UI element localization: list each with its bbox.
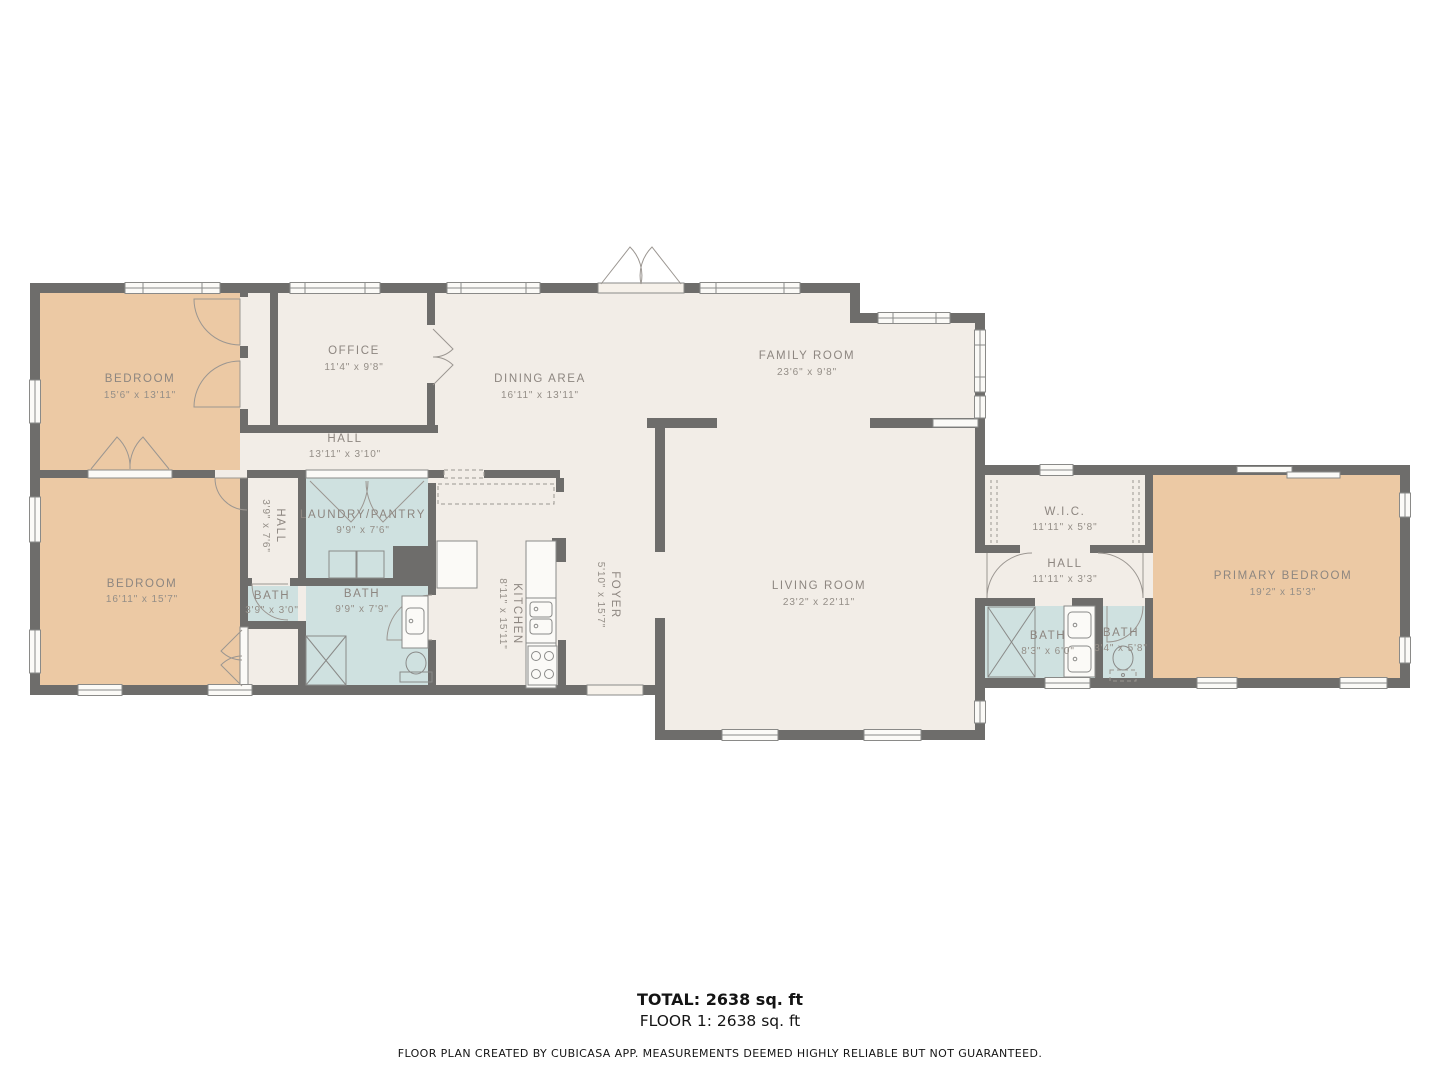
svg-text:23'2" x 22'11": 23'2" x 22'11" <box>783 597 855 608</box>
entry-door-leaf <box>640 247 681 284</box>
window <box>447 283 540 294</box>
svg-text:11'11" x 5'8": 11'11" x 5'8" <box>1032 522 1097 533</box>
laundry-door-sill <box>306 470 428 478</box>
window <box>1400 637 1411 663</box>
svg-text:BEDROOM: BEDROOM <box>105 373 176 385</box>
disclaimer-text: FLOOR PLAN CREATED BY CUBICASA APP. MEAS… <box>0 1047 1440 1060</box>
window <box>722 730 778 741</box>
window <box>1040 465 1073 476</box>
window <box>975 330 986 392</box>
window <box>1400 493 1411 517</box>
footer: TOTAL: 2638 sq. ft FLOOR 1: 2638 sq. ft … <box>0 990 1440 1060</box>
svg-text:23'6" x 9'8": 23'6" x 9'8" <box>777 367 837 378</box>
window <box>30 497 41 542</box>
front-entry-sill <box>587 685 643 695</box>
svg-text:DINING AREA: DINING AREA <box>494 373 586 385</box>
svg-text:3'9" x 3'0": 3'9" x 3'0" <box>245 605 299 616</box>
svg-text:13'11" x 3'10": 13'11" x 3'10" <box>309 449 381 460</box>
window <box>1197 678 1237 689</box>
svg-text:3'9" x 7'6": 3'9" x 7'6" <box>260 499 271 553</box>
svg-text:BEDROOM: BEDROOM <box>107 578 178 590</box>
window <box>208 685 252 696</box>
svg-text:16'11" x 13'11": 16'11" x 13'11" <box>501 390 579 401</box>
window <box>290 283 380 294</box>
window <box>125 283 220 294</box>
svg-text:HALL: HALL <box>1047 558 1082 570</box>
window <box>1340 678 1387 689</box>
floor-area-text: FLOOR 1: 2638 sq. ft <box>0 1012 1440 1030</box>
passthrough-sill <box>933 419 978 427</box>
svg-text:OFFICE: OFFICE <box>328 345 380 357</box>
svg-text:3'4" x 5'8": 3'4" x 5'8" <box>1094 643 1148 654</box>
stove <box>528 646 557 685</box>
window <box>30 380 41 423</box>
svg-text:8'3" x 6'0": 8'3" x 6'0" <box>1021 646 1075 657</box>
svg-text:9'9" x 7'9": 9'9" x 7'9" <box>335 604 389 615</box>
window <box>975 396 986 418</box>
svg-text:HALL: HALL <box>274 508 286 543</box>
svg-text:11'4" x 9'8": 11'4" x 9'8" <box>324 362 383 373</box>
svg-text:BATH: BATH <box>254 590 290 602</box>
closet-sill-bedroom2 <box>240 627 248 687</box>
svg-text:15'6" x 13'11": 15'6" x 13'11" <box>104 390 176 401</box>
svg-text:BATH: BATH <box>344 588 380 600</box>
window <box>700 283 800 294</box>
window <box>864 730 921 741</box>
window <box>78 685 122 696</box>
svg-text:5'10" x 15'7": 5'10" x 15'7" <box>595 562 606 629</box>
window <box>1045 678 1090 689</box>
window <box>30 630 41 673</box>
svg-text:LAUNDRY/PANTRY: LAUNDRY/PANTRY <box>300 509 426 521</box>
hall-right-opening <box>973 553 987 598</box>
kitchen-island <box>437 541 477 588</box>
svg-text:W.I.C.: W.I.C. <box>1045 506 1086 518</box>
svg-text:HALL: HALL <box>327 433 362 445</box>
laundry-cabinet <box>393 546 428 578</box>
vanity <box>402 596 428 648</box>
svg-text:LIVING ROOM: LIVING ROOM <box>772 580 866 592</box>
svg-text:PRIMARY BEDROOM: PRIMARY BEDROOM <box>1214 570 1353 582</box>
svg-text:KITCHEN: KITCHEN <box>511 583 523 645</box>
total-area-text: TOTAL: 2638 sq. ft <box>0 990 1440 1009</box>
svg-text:16'11" x 15'7": 16'11" x 15'7" <box>106 594 178 605</box>
svg-text:11'11" x 3'3": 11'11" x 3'3" <box>1032 574 1097 585</box>
svg-text:FAMILY ROOM: FAMILY ROOM <box>759 350 855 362</box>
svg-text:FOYER: FOYER <box>609 571 621 619</box>
double-vanity <box>1064 606 1095 677</box>
floor-plan: BEDROOM15'6" x 13'11" OFFICE11'4" x 9'8"… <box>0 0 1440 1080</box>
entry-door-leaf <box>601 247 642 284</box>
closet-sill-bedroom1 <box>88 470 172 478</box>
svg-text:BATH: BATH <box>1103 627 1139 639</box>
window <box>878 313 950 324</box>
svg-text:9'9" x 7'6": 9'9" x 7'6" <box>336 525 390 536</box>
svg-text:19'2" x 15'3": 19'2" x 15'3" <box>1250 587 1317 598</box>
entry-door-sill <box>598 283 684 293</box>
svg-text:BATH: BATH <box>1030 630 1066 642</box>
window <box>975 701 986 723</box>
svg-text:8'11" x 15'11": 8'11" x 15'11" <box>497 578 508 650</box>
